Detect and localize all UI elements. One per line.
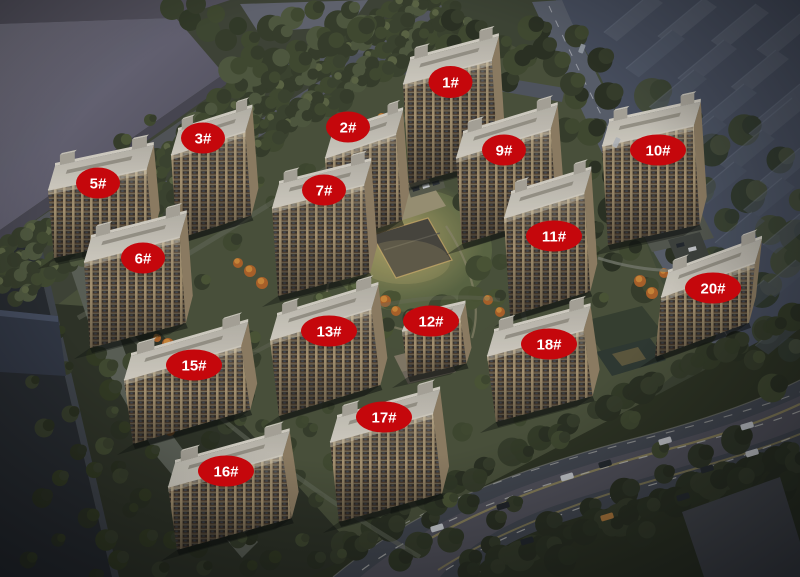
svg-text:7#: 7# [316, 182, 333, 199]
svg-text:2#: 2# [340, 119, 357, 136]
svg-text:13#: 13# [316, 323, 342, 340]
svg-text:11#: 11# [542, 228, 567, 245]
svg-text:3#: 3# [195, 130, 212, 147]
svg-text:9#: 9# [496, 142, 513, 159]
svg-text:16#: 16# [213, 463, 239, 480]
svg-text:12#: 12# [418, 313, 444, 330]
svg-text:17#: 17# [371, 409, 397, 426]
svg-text:6#: 6# [135, 250, 152, 267]
svg-text:1#: 1# [442, 74, 459, 91]
svg-text:20#: 20# [700, 280, 726, 297]
svg-text:10#: 10# [645, 142, 671, 159]
svg-text:15#: 15# [181, 357, 207, 374]
svg-text:18#: 18# [536, 336, 562, 353]
svg-text:5#: 5# [90, 175, 107, 192]
